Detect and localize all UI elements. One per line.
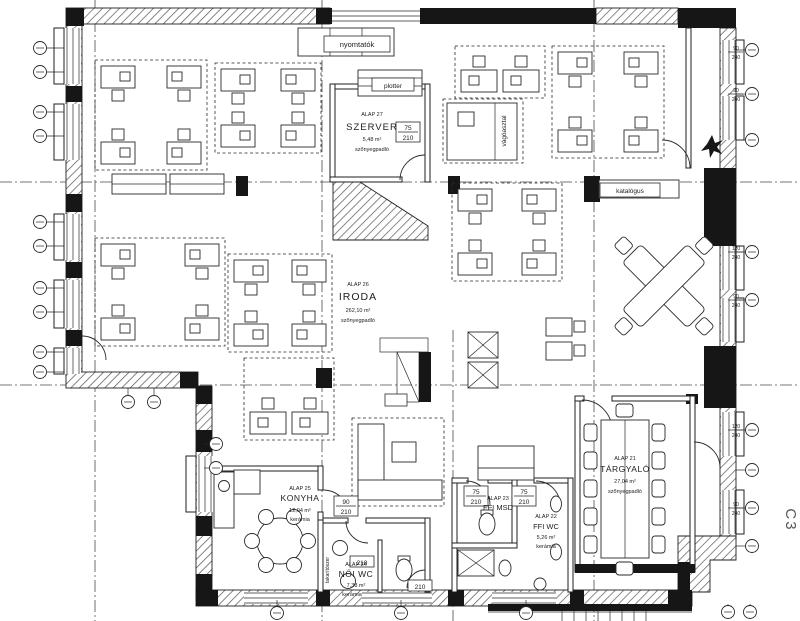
svg-text:240: 240	[732, 511, 741, 517]
room-label-ffi-msd: ALAP 23 FFI MSD	[483, 496, 514, 512]
svg-text:75: 75	[404, 125, 412, 132]
svg-text:240: 240	[732, 97, 741, 103]
couch	[478, 446, 534, 480]
desk-cluster	[228, 254, 332, 352]
svg-text:kerámia: kerámia	[342, 592, 363, 598]
window	[65, 214, 81, 260]
svg-text:ALAP 22: ALAP 22	[535, 514, 557, 520]
svg-text:szőnyegpadló: szőnyegpadló	[608, 489, 642, 495]
svg-text:SZERVER: SZERVER	[346, 122, 398, 133]
svg-text:12,04 m²: 12,04 m²	[289, 508, 311, 514]
desk-cluster	[215, 63, 321, 153]
desk-cluster	[95, 238, 225, 346]
room-label-iroda: ALAP 26 IRODA 262,10 m² szőnyegpadló	[339, 282, 377, 324]
window-size-bottom: 240	[732, 55, 741, 61]
door-size-label-noi-wc-2: 210	[408, 580, 432, 591]
window	[330, 10, 420, 22]
svg-text:ALAP 25: ALAP 25	[289, 486, 311, 492]
svg-text:240: 240	[732, 255, 741, 261]
window	[65, 104, 81, 160]
plotter-label: plotter	[384, 83, 403, 90]
sofa-group	[352, 418, 444, 506]
window	[65, 28, 81, 84]
window	[244, 592, 308, 604]
window-size-top: 90	[733, 46, 739, 52]
window	[721, 246, 737, 290]
svg-text:TÁRGYALÓ: TÁRGYALÓ	[600, 464, 650, 474]
window	[362, 592, 432, 604]
svg-text:240: 240	[732, 303, 741, 309]
dimension-marker	[736, 464, 759, 477]
door-size-label-konyha: 90 210	[334, 496, 358, 516]
svg-text:5,48 m²: 5,48 m²	[363, 137, 382, 143]
dimension-marker	[34, 346, 65, 359]
dimension-marker	[736, 540, 759, 553]
svg-text:27,04 m²: 27,04 m²	[614, 479, 636, 485]
svg-text:210: 210	[415, 584, 426, 591]
floor-plan: 90 240 90 240 120 240 90 240 120 240 90 …	[0, 0, 800, 621]
svg-text:210: 210	[403, 135, 414, 142]
dimension-marker	[34, 130, 65, 143]
dimension-marker	[148, 388, 161, 409]
svg-text:210: 210	[471, 499, 482, 506]
svg-text:IRODA: IRODA	[339, 291, 377, 303]
svg-text:120: 120	[732, 424, 741, 430]
svg-text:90: 90	[342, 499, 350, 506]
svg-text:ALAP 24: ALAP 24	[345, 562, 367, 568]
svg-text:210: 210	[341, 509, 352, 516]
dimension-marker	[34, 42, 65, 55]
svg-text:210: 210	[519, 499, 530, 506]
desk-cluster	[452, 183, 562, 281]
svg-text:75: 75	[472, 489, 480, 496]
svg-text:FFI MSD: FFI MSD	[483, 503, 514, 512]
svg-text:kerámia: kerámia	[290, 517, 311, 523]
catalog-label: katalógus	[616, 188, 645, 195]
svg-text:75: 75	[520, 489, 528, 496]
dimension-marker	[34, 282, 65, 295]
svg-text:5,26 m²: 5,26 m²	[537, 535, 556, 541]
cutting-table-label: vágóasztal	[501, 115, 508, 147]
svg-text:kerámia: kerámia	[536, 544, 557, 550]
window	[65, 280, 81, 328]
dimension-marker	[34, 306, 65, 319]
svg-text:120: 120	[732, 246, 741, 252]
dimension-marker	[34, 106, 65, 119]
section-mark: C3	[782, 508, 799, 531]
room-label-szerver: ALAP 27 SZERVER 5,48 m² szőnyegpadló	[346, 112, 398, 153]
dimension-marker	[744, 604, 757, 619]
room-label-ffi-wc: ALAP 22 FFI WC 5,26 m² kerámia	[533, 514, 559, 550]
desk-pair	[455, 46, 545, 98]
window	[65, 348, 81, 374]
svg-text:KONYHA: KONYHA	[281, 493, 320, 503]
svg-text:90: 90	[733, 502, 739, 508]
window	[492, 592, 556, 604]
svg-text:ALAP 23: ALAP 23	[487, 496, 509, 502]
svg-text:FFI WC: FFI WC	[533, 522, 559, 531]
svg-text:240: 240	[732, 433, 741, 439]
desk-cluster	[552, 46, 664, 158]
dimension-marker	[34, 240, 65, 253]
svg-text:7,38 m²: 7,38 m²	[347, 583, 366, 589]
dimension-marker	[34, 216, 65, 229]
dimension-marker	[122, 388, 135, 409]
svg-text:ALAP 26: ALAP 26	[347, 282, 369, 288]
printers-label: nyomtatók	[340, 40, 375, 49]
mini-meeting-tables	[546, 318, 585, 360]
dimension-marker	[34, 66, 65, 79]
svg-text:ALAP 27: ALAP 27	[361, 112, 383, 118]
vago-table	[443, 99, 523, 163]
dimension-marker	[736, 134, 759, 147]
svg-text:90: 90	[733, 88, 739, 94]
svg-text:90: 90	[733, 294, 739, 300]
desk-cluster	[95, 60, 207, 170]
svg-text:NŐI WC: NŐI WC	[339, 569, 374, 579]
svg-text:262,10 m²: 262,10 m²	[346, 308, 371, 314]
dimension-marker	[34, 366, 65, 379]
svg-text:ALAP 21: ALAP 21	[614, 456, 636, 462]
door-size-label-ffi-wc: 75 210	[512, 486, 536, 506]
door-size-label-szerver: 75 210	[396, 122, 420, 142]
dimension-marker	[722, 604, 735, 619]
cleaning-label: takarítószer	[325, 557, 331, 583]
svg-text:szőnyegpadló: szőnyegpadló	[341, 318, 375, 324]
floor-plan-svg: 90 240 90 240 120 240 90 240 120 240 90 …	[0, 0, 800, 621]
svg-text:szőnyegpadló: szőnyegpadló	[355, 147, 389, 153]
